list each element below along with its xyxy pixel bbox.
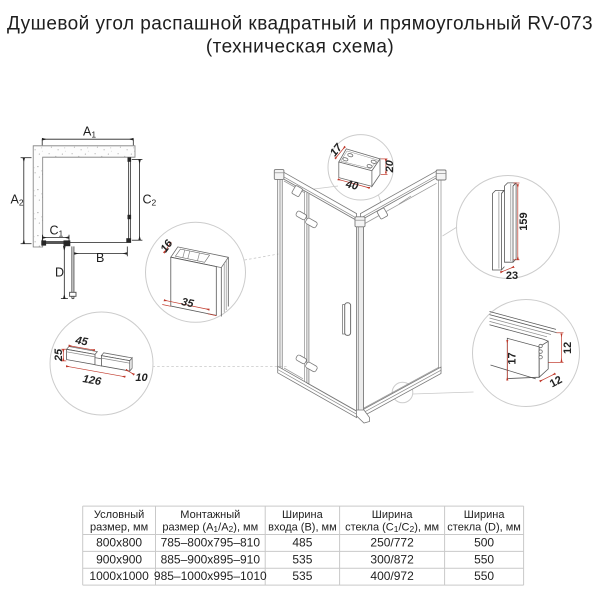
svg-text:485: 485 (292, 536, 312, 550)
svg-text:535: 535 (292, 569, 312, 583)
svg-text:300/872: 300/872 (370, 552, 414, 566)
svg-text:Условный: Условный (94, 509, 144, 521)
svg-text:12: 12 (562, 342, 574, 354)
svg-text:800х800: 800х800 (96, 536, 142, 550)
svg-text:B: B (96, 251, 104, 265)
svg-text:23: 23 (506, 270, 518, 282)
svg-text:159: 159 (518, 212, 530, 230)
svg-text:10: 10 (135, 372, 148, 384)
svg-text:стекла (D), мм: стекла (D), мм (447, 522, 521, 534)
svg-text:(техническая схема): (техническая схема) (206, 37, 394, 58)
svg-text:17: 17 (507, 352, 519, 364)
svg-text:20: 20 (384, 159, 396, 173)
svg-text:Ширина: Ширина (372, 509, 414, 521)
svg-text:550: 550 (474, 569, 494, 583)
svg-text:550: 550 (474, 552, 494, 566)
svg-text:Ширина: Ширина (464, 509, 506, 521)
svg-text:Монтажный: Монтажный (180, 509, 240, 521)
svg-text:Ширина: Ширина (282, 509, 324, 521)
svg-text:D: D (55, 266, 64, 280)
svg-text:900х900: 900х900 (96, 552, 142, 566)
svg-text:535: 535 (292, 552, 312, 566)
svg-text:400/972: 400/972 (370, 569, 414, 583)
svg-text:785–800х795–810: 785–800х795–810 (161, 536, 261, 550)
svg-text:размер, мм: размер, мм (90, 522, 148, 534)
svg-text:500: 500 (474, 536, 494, 550)
svg-text:885–900х895–910: 885–900х895–910 (161, 552, 261, 566)
svg-text:входа (B), мм: входа (B), мм (268, 522, 337, 534)
svg-text:250/772: 250/772 (370, 536, 414, 550)
svg-text:Душевой угол распашной квадрат: Душевой угол распашной квадратный и прям… (7, 14, 593, 35)
svg-text:1000х1000: 1000х1000 (89, 569, 149, 583)
svg-text:размер (A1/A2), мм: размер (A1/A2), мм (162, 522, 258, 535)
svg-text:25: 25 (53, 348, 65, 362)
svg-text:стекла (C1/C2), мм: стекла (C1/C2), мм (345, 522, 439, 535)
svg-text:985–1000х995–1010: 985–1000х995–1010 (154, 569, 267, 583)
